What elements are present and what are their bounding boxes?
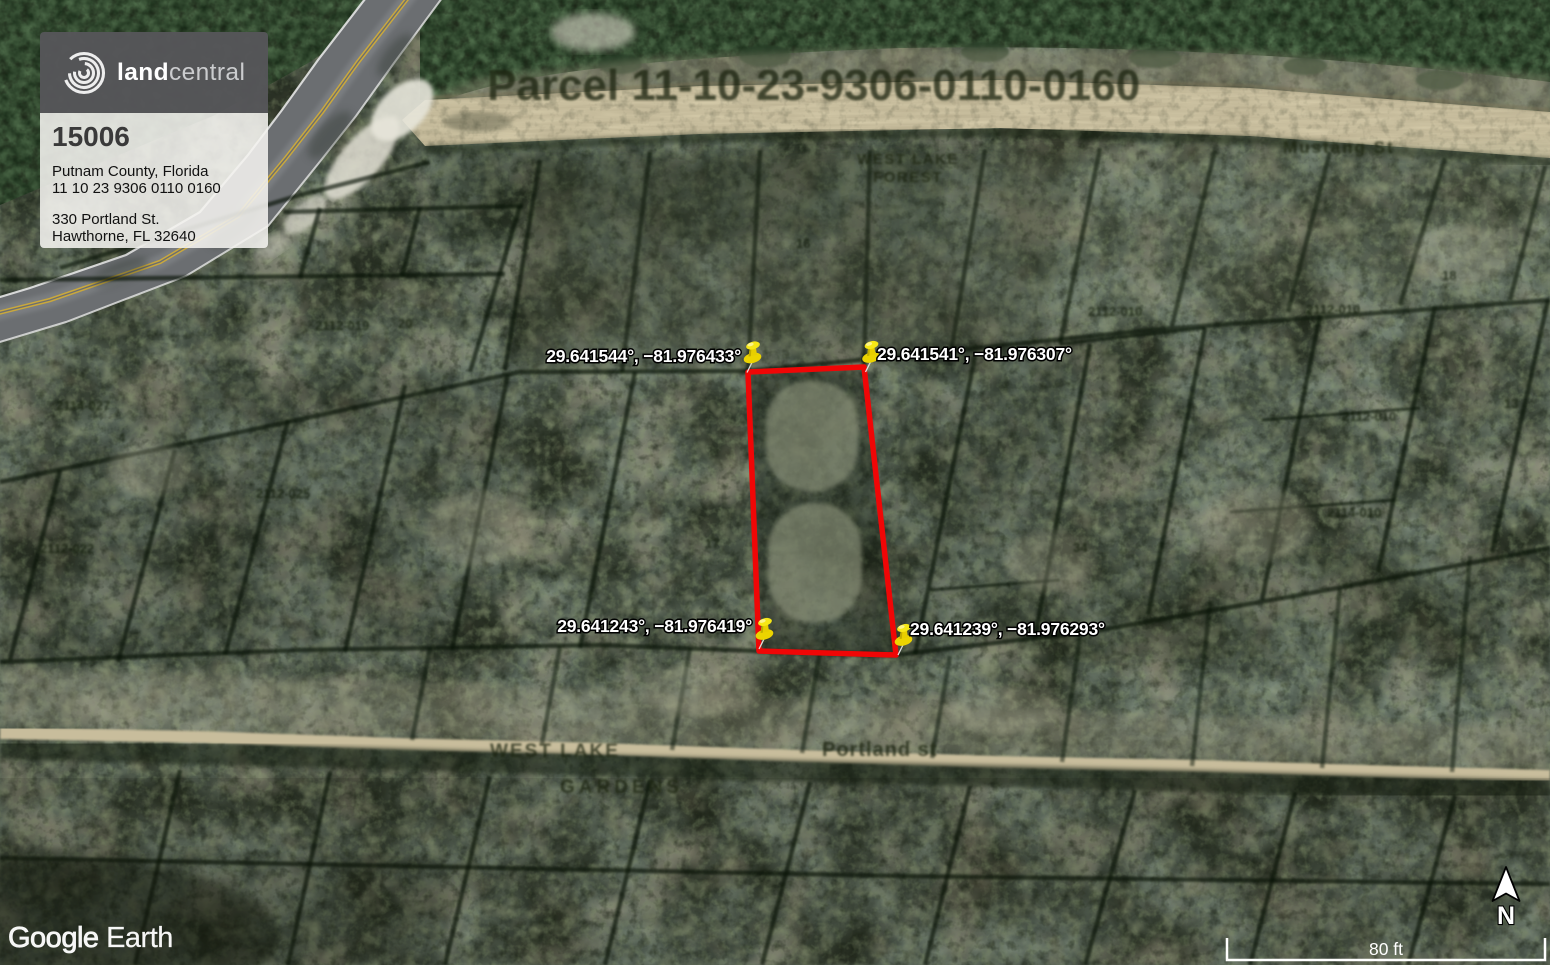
svg-text:N: N (1497, 902, 1515, 930)
svg-text:2112-025: 2112-025 (256, 486, 310, 501)
svg-text:29.641544°, −81.976433°: 29.641544°, −81.976433° (546, 346, 741, 366)
svg-text:13: 13 (1504, 396, 1518, 411)
svg-text:2114-010: 2114-010 (1327, 505, 1381, 520)
svg-text:Portland st: Portland st (822, 739, 937, 761)
svg-text:2112-022: 2112-022 (40, 541, 94, 556)
svg-text:4: 4 (118, 430, 126, 445)
svg-text:GARDENS: GARDENS (560, 777, 683, 798)
svg-text:Mustang St: Mustang St (1283, 138, 1395, 157)
svg-text:2112-010: 2112-010 (1342, 409, 1396, 424)
svg-text:Google Earth: Google Earth (8, 922, 173, 954)
svg-text:80 ft: 80 ft (1369, 939, 1403, 959)
svg-text:34: 34 (1073, 540, 1088, 555)
svg-text:FOREST: FOREST (873, 169, 943, 186)
svg-text:29.641239°, −81.976293°: 29.641239°, −81.976293° (910, 619, 1105, 639)
svg-text:29.641541°, −81.976307°: 29.641541°, −81.976307° (877, 344, 1072, 364)
svg-text:18: 18 (1442, 268, 1456, 283)
svg-text:2112-010: 2112-010 (1088, 304, 1142, 319)
svg-text:2112-010: 2112-010 (1306, 302, 1360, 317)
svg-text:29.641243°, −81.976419°: 29.641243°, −81.976419° (557, 616, 752, 636)
svg-text:Parcel 11-10-23-9306-0110-0160: Parcel 11-10-23-9306-0110-0160 (487, 61, 1140, 110)
svg-text:2114-027: 2114-027 (56, 398, 110, 413)
svg-text:20: 20 (398, 316, 412, 331)
svg-text:WEST LAKE: WEST LAKE (490, 741, 620, 762)
svg-text:16: 16 (796, 236, 810, 251)
svg-text:WEST LAKE: WEST LAKE (857, 151, 959, 168)
svg-text:17: 17 (705, 536, 719, 551)
svg-text:2112-019: 2112-019 (315, 318, 369, 333)
